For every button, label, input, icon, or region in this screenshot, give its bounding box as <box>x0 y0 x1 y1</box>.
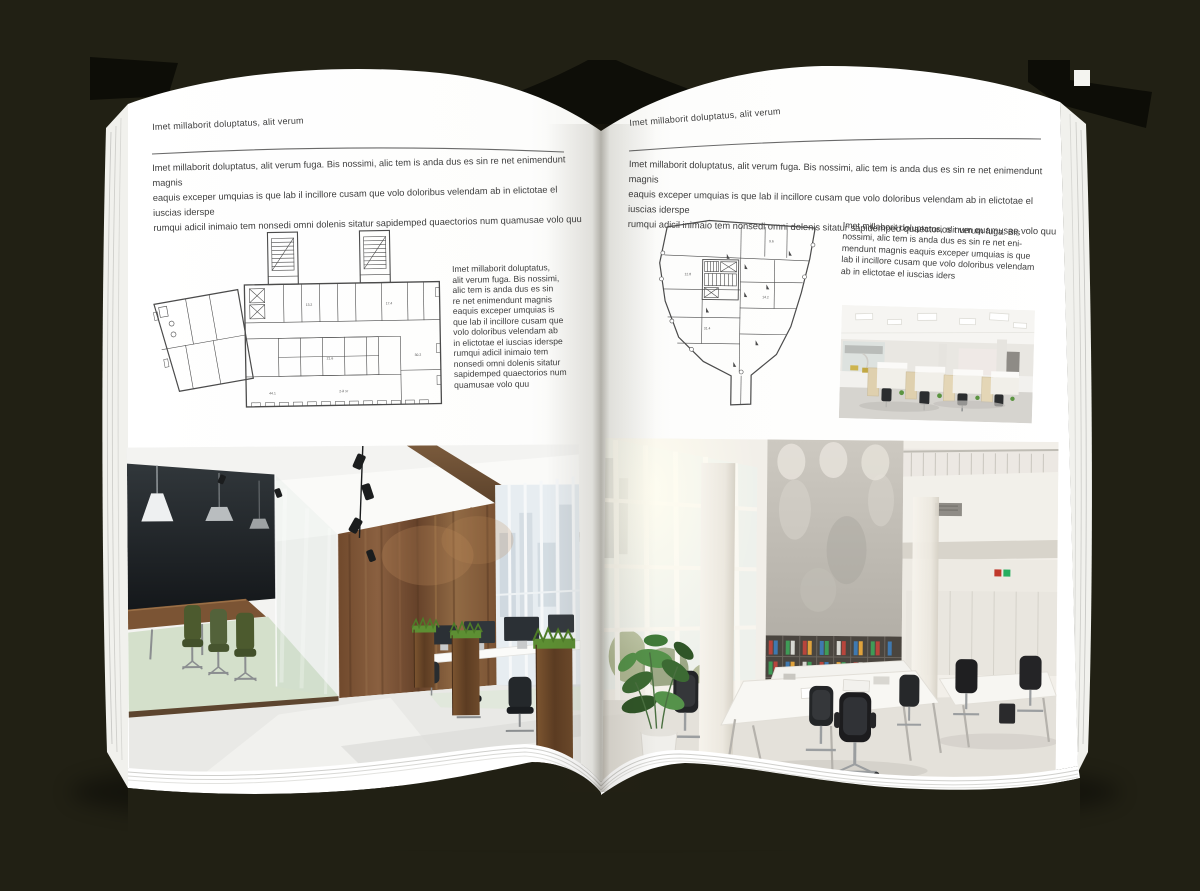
magazine-spread-mockup: Imet millaborit doluptatus, alit verum I… <box>0 0 1200 891</box>
book-overlay <box>0 0 1200 891</box>
left-page-curl <box>128 744 602 850</box>
gutter-shadow <box>546 124 656 792</box>
right-page-curl <box>601 750 1080 850</box>
